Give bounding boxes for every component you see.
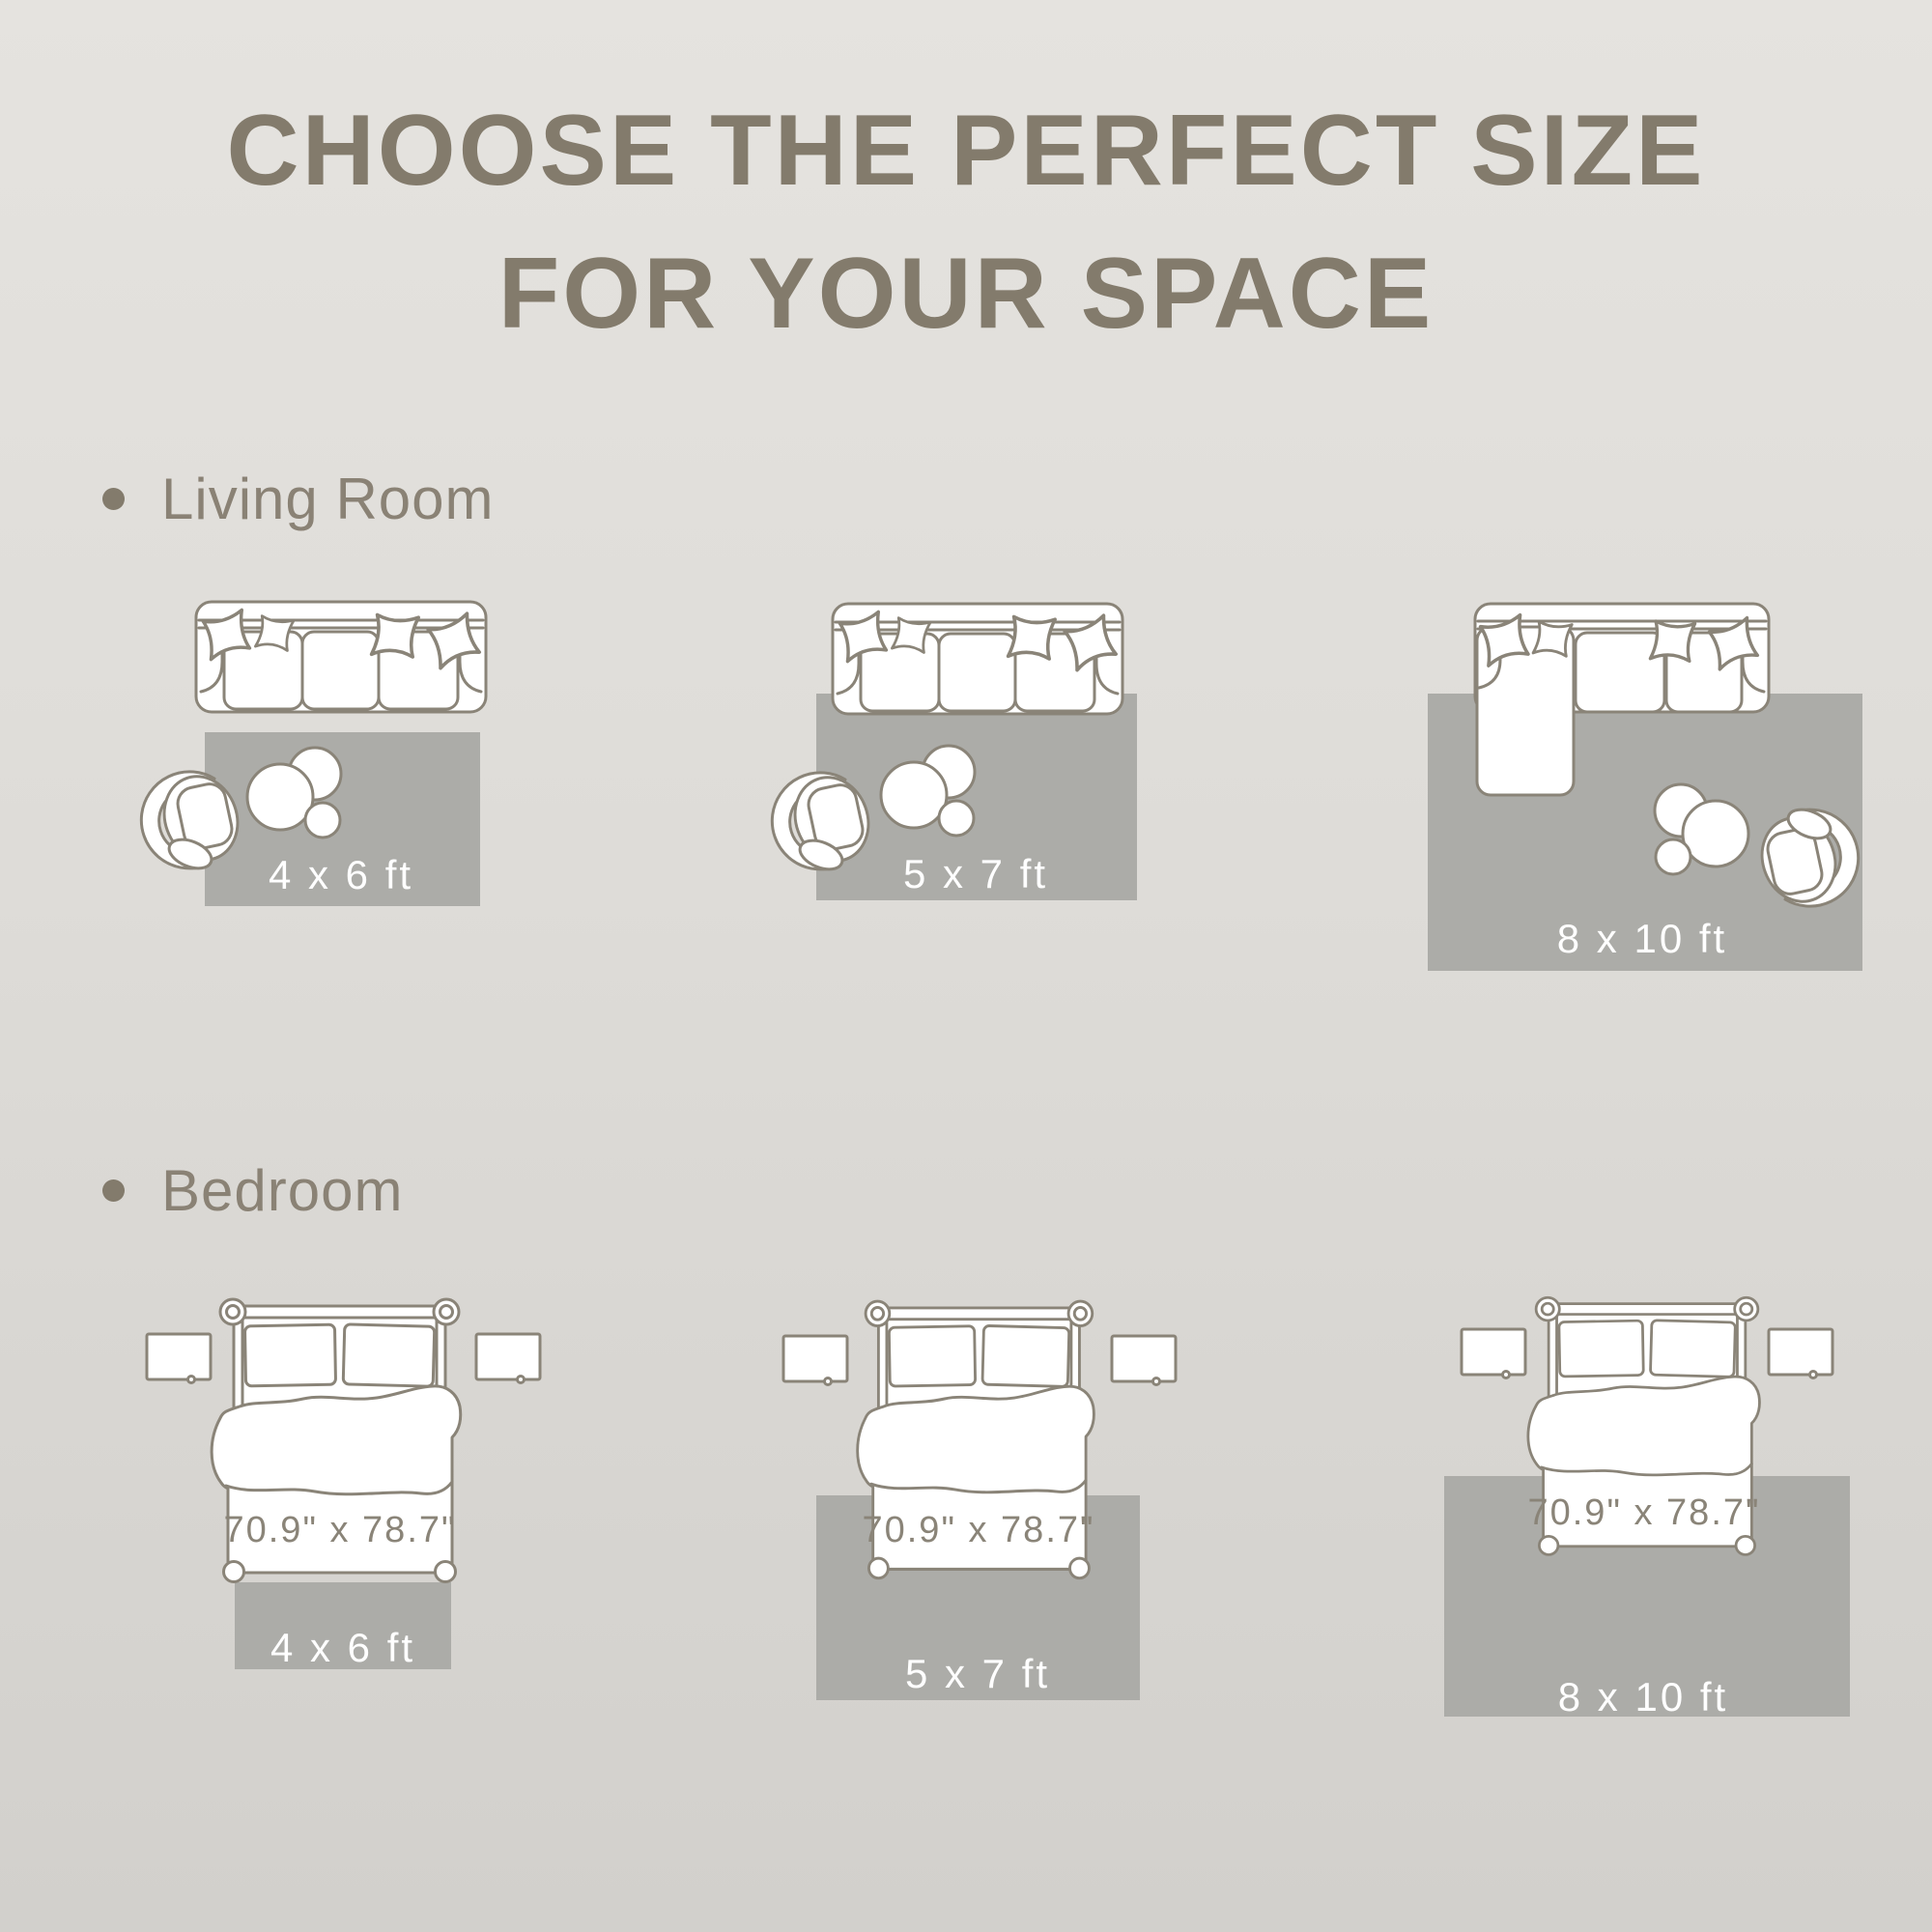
bed-size-label: 70.9" x 78.7" <box>862 1510 1094 1550</box>
page-title-line2: FOR YOUR SPACE <box>0 222 1932 365</box>
nightstand-icon <box>147 1334 211 1383</box>
section-label: Bedroom <box>161 1157 403 1224</box>
bullet-icon <box>102 488 125 510</box>
rug-size-label: 5 x 7 ft <box>905 1651 1050 1696</box>
rug-size-label: 4 x 6 ft <box>270 1625 415 1670</box>
section-header-living-room: Living Room <box>102 466 495 532</box>
bed-size-label: 70.9" x 78.7" <box>223 1510 456 1550</box>
nightstand-icon <box>1462 1329 1525 1378</box>
nightstand-icon <box>476 1334 540 1383</box>
page-title-line1: CHOOSE THE PERFECT SIZE <box>0 79 1932 222</box>
section-label: Living Room <box>161 466 495 532</box>
nightstand-icon <box>783 1336 847 1385</box>
sofa-icon <box>833 604 1122 714</box>
bedroom-5x7-layout: 70.9" x 78.7" 5 x 7 ft <box>763 1285 1188 1715</box>
sofa-icon <box>196 602 486 712</box>
rug-size-label: 8 x 10 ft <box>1558 1674 1728 1719</box>
bedroom-8x10-layout: 70.9" x 78.7" 8 x 10 ft <box>1401 1285 1903 1739</box>
living-room-5x7-layout: 5 x 7 ft <box>763 580 1169 927</box>
living-room-4x6-layout: 4 x 6 ft <box>135 580 502 927</box>
living-room-8x10-layout: 8 x 10 ft <box>1401 570 1903 985</box>
page-title: CHOOSE THE PERFECT SIZE FOR YOUR SPACE <box>0 79 1932 365</box>
nightstand-icon <box>1769 1329 1833 1378</box>
rug-size-label: 4 x 6 ft <box>269 852 413 897</box>
rug-size-label: 8 x 10 ft <box>1557 916 1727 961</box>
bullet-icon <box>102 1179 125 1202</box>
bed-size-label: 70.9" x 78.7" <box>1527 1492 1760 1533</box>
rug-size-label: 5 x 7 ft <box>903 851 1048 896</box>
nightstand-icon <box>1112 1336 1176 1385</box>
section-header-bedroom: Bedroom <box>102 1157 403 1224</box>
bedroom-4x6-layout: 70.9" x 78.7" 4 x 6 ft <box>126 1285 580 1690</box>
